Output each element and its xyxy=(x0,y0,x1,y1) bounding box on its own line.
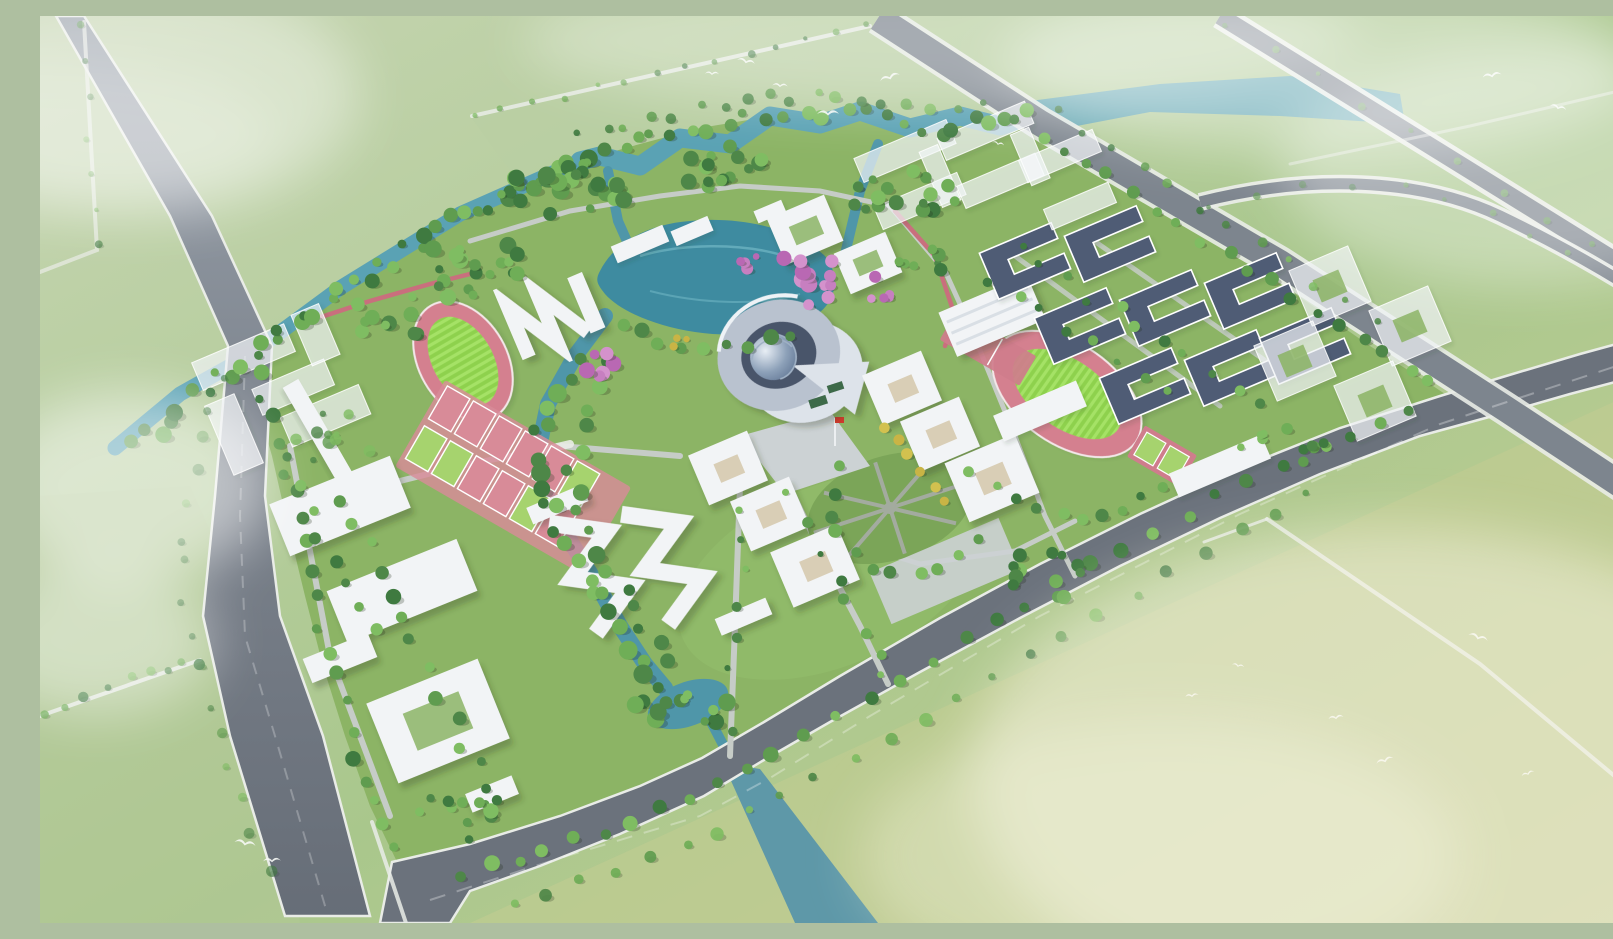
tree xyxy=(1265,272,1279,286)
tree xyxy=(877,671,884,678)
tree xyxy=(628,600,639,611)
tree xyxy=(776,251,791,266)
tree xyxy=(266,408,281,423)
tree xyxy=(221,375,228,382)
tree xyxy=(868,564,880,576)
tree xyxy=(586,574,599,587)
tree xyxy=(497,105,503,111)
tree xyxy=(1253,192,1261,200)
tree xyxy=(917,128,926,137)
tree xyxy=(1060,147,1069,156)
tree xyxy=(879,423,890,434)
tree xyxy=(483,205,493,215)
tree xyxy=(941,179,955,193)
tree xyxy=(1374,318,1381,325)
tree xyxy=(836,575,847,586)
tree xyxy=(981,115,996,130)
tree xyxy=(817,551,823,557)
tree xyxy=(725,119,738,132)
tree xyxy=(455,871,466,882)
tree xyxy=(852,754,860,762)
tree xyxy=(673,334,681,342)
tree xyxy=(895,257,904,266)
tree xyxy=(511,899,519,907)
tree xyxy=(683,336,689,342)
tree xyxy=(549,498,564,513)
tree xyxy=(516,857,526,867)
tree xyxy=(571,553,586,568)
tree xyxy=(722,103,731,112)
tree xyxy=(485,270,494,279)
tree xyxy=(372,258,381,267)
tree xyxy=(1222,221,1230,229)
tree xyxy=(963,466,974,477)
tree xyxy=(330,434,342,446)
tree xyxy=(465,835,474,844)
tree xyxy=(797,729,810,742)
tree xyxy=(1082,298,1090,306)
tree xyxy=(513,194,527,208)
tree xyxy=(909,261,918,270)
tree xyxy=(375,566,389,580)
tree xyxy=(1178,349,1186,357)
campus-aerial-rendering xyxy=(40,16,1613,923)
tree xyxy=(473,206,483,216)
tree xyxy=(1235,385,1246,396)
tree xyxy=(354,602,364,612)
tree xyxy=(990,613,1004,627)
tree xyxy=(1058,508,1070,520)
tree xyxy=(1035,304,1043,312)
tree xyxy=(444,208,458,222)
tree xyxy=(370,796,379,805)
tree xyxy=(934,263,947,276)
tree xyxy=(943,123,958,138)
tree xyxy=(557,536,572,551)
tree xyxy=(889,195,904,210)
tree xyxy=(1063,271,1072,280)
tree xyxy=(1129,321,1140,332)
tree xyxy=(1113,543,1128,558)
tree xyxy=(426,794,434,802)
tree xyxy=(404,307,419,322)
tree xyxy=(871,190,886,205)
tree xyxy=(1360,334,1372,346)
tree xyxy=(1241,265,1253,277)
tree xyxy=(601,829,611,839)
tree xyxy=(207,705,214,712)
tree xyxy=(651,337,664,350)
tree xyxy=(597,143,611,157)
tree xyxy=(618,319,631,332)
tree xyxy=(1114,359,1120,365)
tree xyxy=(543,207,557,221)
tree xyxy=(1108,144,1115,151)
rendering-canvas xyxy=(40,16,1613,923)
tree xyxy=(1225,246,1238,259)
tree xyxy=(492,795,502,805)
tree xyxy=(484,855,500,871)
tree xyxy=(931,563,943,575)
tree xyxy=(906,164,920,178)
tree xyxy=(1209,489,1219,499)
tree xyxy=(598,565,612,579)
tree xyxy=(305,564,319,578)
tree xyxy=(916,567,928,579)
tree xyxy=(1016,291,1027,302)
tree xyxy=(919,199,928,208)
tree xyxy=(508,170,524,186)
tree xyxy=(1307,440,1318,451)
tree xyxy=(428,691,443,706)
tree xyxy=(295,480,307,492)
tree xyxy=(323,647,337,661)
tree xyxy=(653,682,664,693)
tree xyxy=(983,278,992,287)
tree xyxy=(290,434,301,445)
tree xyxy=(619,125,627,133)
tree xyxy=(1255,398,1265,408)
tree xyxy=(334,495,346,507)
tree xyxy=(867,294,876,303)
tree xyxy=(217,728,227,738)
tree xyxy=(474,797,485,808)
tree xyxy=(584,526,593,535)
tree xyxy=(345,751,361,767)
tree xyxy=(274,438,286,450)
tree xyxy=(1313,309,1322,318)
tree xyxy=(777,111,788,122)
tree xyxy=(1278,460,1290,472)
tree xyxy=(95,240,103,248)
tree xyxy=(697,342,710,355)
tree xyxy=(1185,511,1196,522)
tree xyxy=(349,727,360,738)
tree xyxy=(311,426,323,438)
tree xyxy=(233,359,248,374)
tree xyxy=(861,628,872,639)
tree xyxy=(297,512,310,525)
tree xyxy=(206,388,216,398)
tree xyxy=(510,266,525,281)
tree xyxy=(1019,602,1029,612)
tree xyxy=(802,517,813,528)
tree xyxy=(700,717,708,725)
tree xyxy=(653,800,667,814)
tree xyxy=(1404,406,1414,416)
tree xyxy=(1057,590,1071,604)
tree xyxy=(644,129,653,138)
tree xyxy=(477,757,486,766)
tree xyxy=(254,351,263,360)
tree xyxy=(351,298,365,312)
tree xyxy=(1239,474,1253,488)
tree xyxy=(644,851,656,863)
tree xyxy=(600,603,617,620)
tree xyxy=(367,537,377,547)
tree xyxy=(1058,551,1067,560)
tree xyxy=(1136,492,1145,501)
tree xyxy=(282,452,291,461)
tree xyxy=(387,261,399,273)
tree xyxy=(1422,375,1433,386)
tree xyxy=(528,424,539,435)
tree xyxy=(571,169,582,180)
tree xyxy=(702,158,715,171)
tree xyxy=(244,828,255,839)
tree xyxy=(443,796,454,807)
tree xyxy=(238,793,247,802)
tree xyxy=(1302,490,1309,497)
tree xyxy=(1095,509,1108,522)
tree xyxy=(900,120,909,129)
tree xyxy=(988,673,995,680)
tree xyxy=(1281,423,1293,435)
red-flag xyxy=(835,417,844,423)
tree xyxy=(684,840,693,849)
tree xyxy=(763,747,779,763)
tree xyxy=(349,275,359,285)
tree xyxy=(623,816,638,831)
tree xyxy=(633,624,643,634)
tree xyxy=(1146,527,1158,539)
tree xyxy=(548,384,567,403)
tree xyxy=(454,743,465,754)
tree xyxy=(481,784,491,794)
tree xyxy=(708,714,724,730)
tree xyxy=(222,763,229,770)
tree xyxy=(429,220,442,233)
tree xyxy=(723,139,737,153)
tree xyxy=(930,482,940,492)
tree xyxy=(738,109,747,118)
tree xyxy=(588,546,606,564)
tree xyxy=(1195,238,1205,248)
tree xyxy=(742,764,753,775)
tree xyxy=(1079,130,1086,137)
tree xyxy=(683,151,699,167)
tree xyxy=(1082,159,1092,169)
tree xyxy=(463,818,472,827)
tree xyxy=(398,240,407,249)
tree xyxy=(361,777,372,788)
tree xyxy=(590,177,606,193)
tree xyxy=(919,713,933,727)
tree xyxy=(434,281,444,291)
tree xyxy=(605,125,614,134)
tree xyxy=(683,690,692,699)
tree xyxy=(371,623,383,635)
tree xyxy=(698,124,713,139)
tree xyxy=(681,174,697,190)
tree xyxy=(538,498,549,509)
tree xyxy=(566,374,578,386)
tree xyxy=(365,273,380,288)
tree xyxy=(1376,345,1388,357)
tree xyxy=(712,777,723,788)
tree xyxy=(901,448,913,460)
tree xyxy=(1008,579,1019,590)
tree xyxy=(954,550,964,560)
tree xyxy=(278,469,288,479)
tree xyxy=(736,257,745,266)
tree xyxy=(561,465,572,476)
tree xyxy=(389,842,398,851)
tree xyxy=(365,310,380,325)
tree xyxy=(541,417,555,431)
tree xyxy=(1283,292,1296,305)
tree xyxy=(1206,205,1211,210)
tree xyxy=(763,329,779,345)
tree xyxy=(703,177,714,188)
tree xyxy=(825,511,838,524)
tree xyxy=(425,240,442,257)
tree xyxy=(586,204,595,213)
tree xyxy=(510,247,525,262)
tree xyxy=(624,584,635,595)
tree xyxy=(865,692,879,706)
tree xyxy=(794,254,808,268)
tree xyxy=(1342,297,1348,303)
tree xyxy=(611,868,621,878)
tree xyxy=(803,299,814,310)
tree xyxy=(425,662,435,672)
tree xyxy=(576,445,591,460)
tree xyxy=(345,518,357,530)
tree xyxy=(320,411,326,417)
tree xyxy=(732,602,742,612)
tree xyxy=(710,827,723,840)
tree xyxy=(848,199,860,211)
tree xyxy=(960,631,973,644)
tree xyxy=(688,125,699,136)
tree xyxy=(573,129,580,136)
tree xyxy=(782,489,789,496)
tree xyxy=(1039,133,1051,145)
tree xyxy=(1298,456,1309,467)
tree xyxy=(940,497,949,506)
tree xyxy=(567,831,580,844)
tree xyxy=(531,463,551,483)
tree xyxy=(570,505,581,516)
tree xyxy=(1196,207,1204,215)
tree xyxy=(309,506,319,516)
tree xyxy=(829,488,842,501)
tree xyxy=(732,633,742,643)
tree xyxy=(669,342,677,350)
tree xyxy=(547,526,559,538)
tree xyxy=(1031,503,1042,514)
tree xyxy=(1319,438,1329,448)
tree xyxy=(1049,574,1063,588)
tree xyxy=(590,350,600,360)
tree xyxy=(1171,218,1180,227)
tree xyxy=(1152,207,1162,217)
tree xyxy=(759,113,772,126)
tree xyxy=(883,566,896,579)
tree xyxy=(1258,237,1268,247)
tree xyxy=(309,532,321,544)
tree xyxy=(647,112,657,122)
tree xyxy=(1077,514,1089,526)
tree xyxy=(539,889,552,902)
tree xyxy=(828,524,842,538)
tree xyxy=(408,327,422,341)
tree xyxy=(376,818,389,831)
tree xyxy=(894,675,907,688)
tree xyxy=(562,96,568,102)
tree xyxy=(535,844,548,857)
tree xyxy=(453,712,467,726)
tree xyxy=(457,205,471,219)
tree xyxy=(472,113,477,118)
tree xyxy=(853,181,864,192)
tree xyxy=(573,484,590,501)
tree xyxy=(724,665,730,671)
tree xyxy=(1117,301,1128,312)
tree xyxy=(1011,493,1022,504)
tree xyxy=(457,797,468,808)
tree xyxy=(666,113,677,124)
tree xyxy=(364,445,376,457)
tree xyxy=(633,131,644,142)
tree xyxy=(664,130,675,141)
tree xyxy=(1332,318,1345,331)
tree xyxy=(660,696,673,709)
tree xyxy=(403,633,414,644)
tree xyxy=(1009,114,1019,124)
tree xyxy=(627,696,644,713)
tree xyxy=(329,282,343,296)
tree xyxy=(329,665,343,679)
tree xyxy=(1159,335,1171,347)
tree xyxy=(469,290,478,299)
tree xyxy=(271,325,282,336)
tree xyxy=(619,641,638,660)
tree xyxy=(685,794,696,805)
tree xyxy=(612,619,628,635)
tree xyxy=(869,175,877,183)
tree xyxy=(1076,568,1085,577)
tree xyxy=(1141,373,1151,383)
tree xyxy=(415,807,424,816)
tree xyxy=(408,293,417,302)
tree xyxy=(1270,509,1282,521)
tree xyxy=(1158,482,1169,493)
tree xyxy=(825,255,838,268)
tree xyxy=(579,418,594,433)
tree xyxy=(838,593,849,604)
tree xyxy=(893,434,904,445)
tree xyxy=(254,364,270,380)
tree xyxy=(330,555,343,568)
tree xyxy=(869,271,881,283)
tree xyxy=(435,265,443,273)
tree xyxy=(40,710,49,719)
tree xyxy=(929,657,939,667)
tree xyxy=(753,253,760,260)
tree xyxy=(718,693,735,710)
tree xyxy=(344,409,354,419)
tree xyxy=(660,653,675,668)
tree xyxy=(744,164,753,173)
tree xyxy=(1237,443,1245,451)
tree xyxy=(742,566,749,573)
tree xyxy=(785,331,795,341)
tree xyxy=(1162,178,1172,188)
tree xyxy=(1163,387,1171,395)
tree xyxy=(386,589,402,605)
